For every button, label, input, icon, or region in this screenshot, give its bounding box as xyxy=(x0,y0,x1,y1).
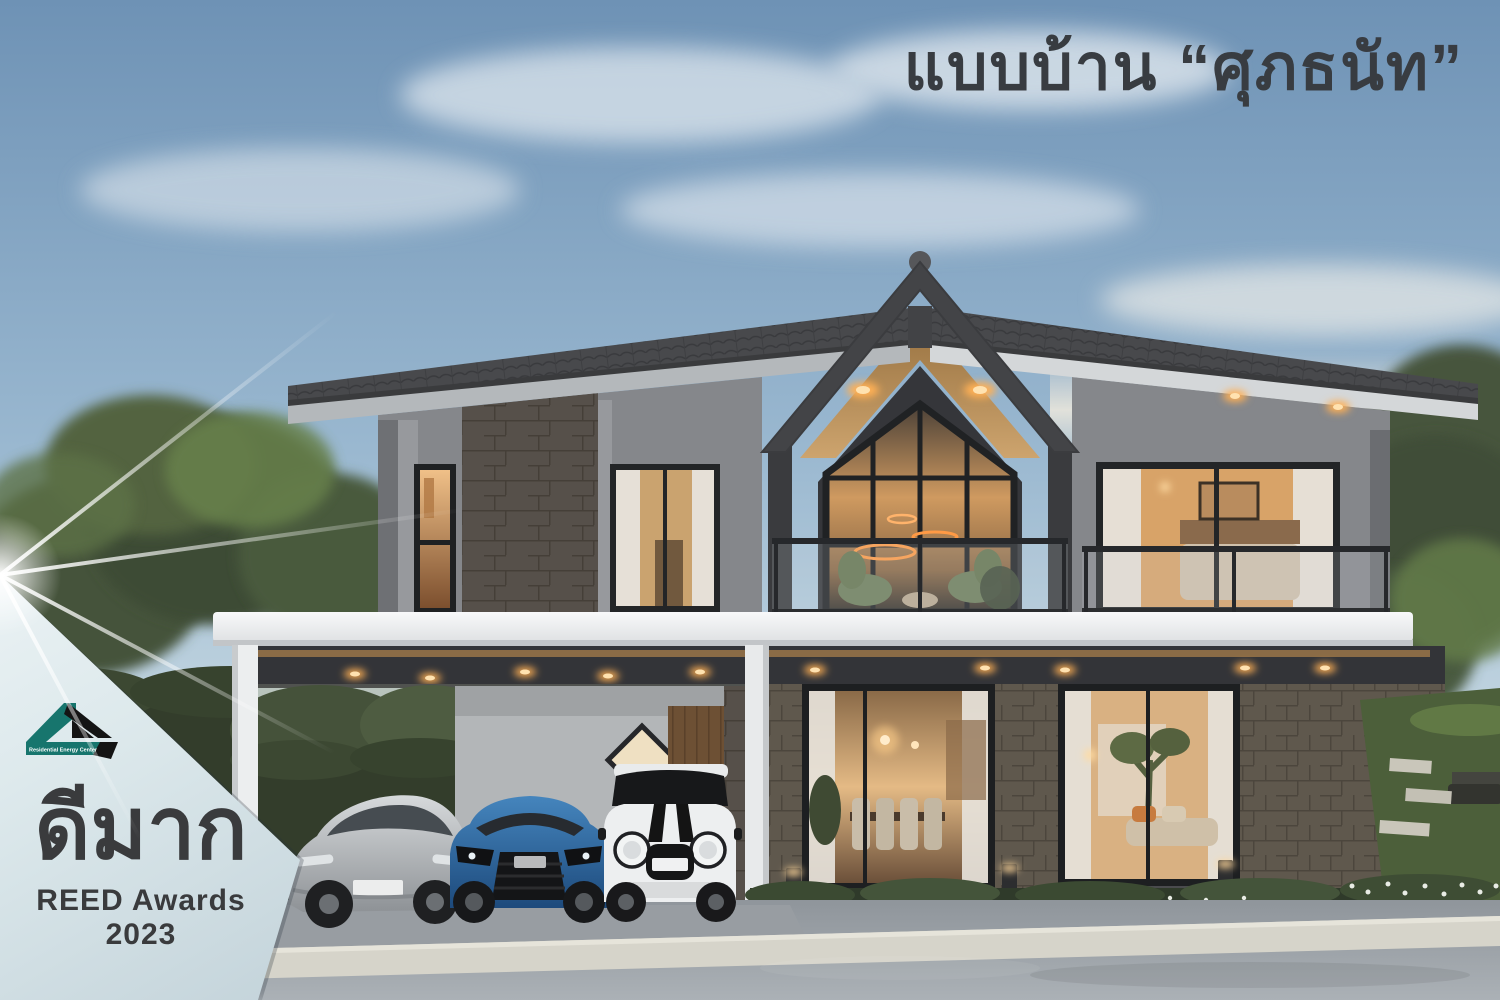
floor-slab xyxy=(213,612,1413,646)
garden-bench xyxy=(1448,784,1500,804)
balcony-railing-center xyxy=(772,538,1068,614)
wood-trim xyxy=(250,650,1430,657)
chandelier xyxy=(880,735,890,745)
stairs xyxy=(946,720,986,800)
license-plate xyxy=(652,858,688,871)
car-white-mini xyxy=(598,764,742,922)
window-narrow-left xyxy=(414,464,456,614)
window-left-curtained xyxy=(610,464,720,612)
sofa xyxy=(1126,818,1218,846)
award-subline: REED Awards 2023 xyxy=(0,884,282,952)
side-mirror xyxy=(598,828,606,840)
license-plate xyxy=(353,880,403,896)
side-mirror xyxy=(734,828,742,840)
poster: Residential Energy Center ดีมาก REED Awa… xyxy=(0,0,1500,1000)
reed-logo: Residential Energy Center xyxy=(24,690,120,762)
stone-panel-upper xyxy=(462,393,598,618)
window-living xyxy=(1058,684,1240,886)
logo-caption: Residential Energy Center xyxy=(29,748,98,754)
license-plate xyxy=(514,856,546,868)
picture-frame xyxy=(1200,483,1258,519)
page-title: แบบบ้าน “ศุภธนัท” xyxy=(904,24,1464,110)
balcony-railing-right xyxy=(1082,546,1390,613)
windshield xyxy=(612,770,728,806)
indoor-plant xyxy=(809,775,841,845)
window-dining xyxy=(802,684,995,890)
